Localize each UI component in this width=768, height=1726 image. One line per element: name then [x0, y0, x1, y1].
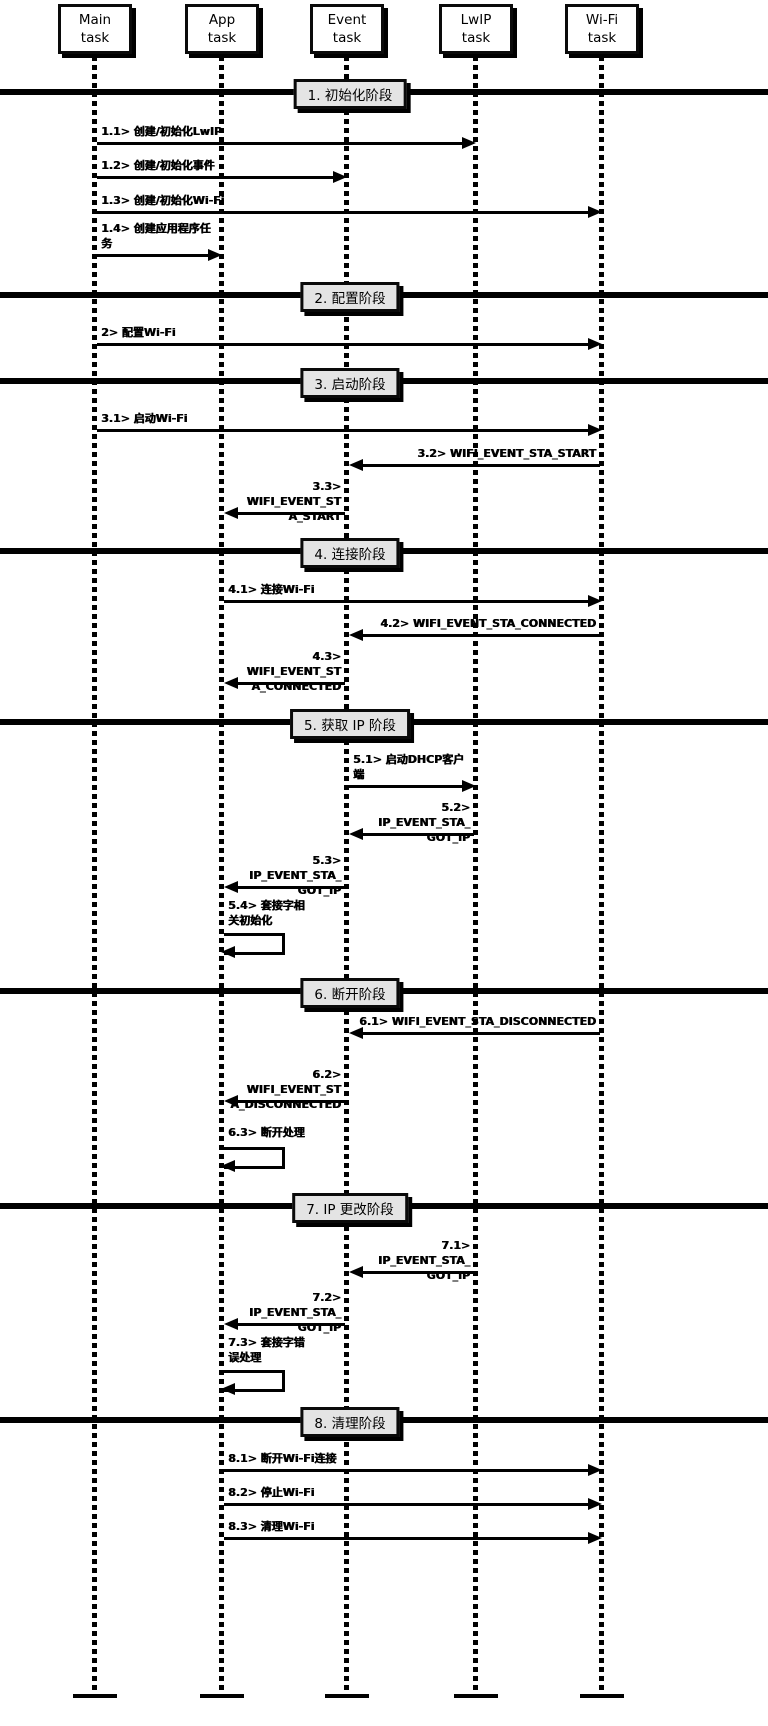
msg-5-1-arrowhead: [462, 780, 476, 792]
msg-4-2-line: [361, 634, 600, 637]
phase-4-divider-label: 4. 连接阶段: [300, 538, 399, 568]
msg-5-1-line: [349, 785, 462, 788]
msg-1-4-label: 1.4> 创建应用程序任 务: [101, 221, 211, 251]
msg-7-3-label: 7.3> 套接字错 误处理: [228, 1335, 305, 1365]
phase-3-divider-label: 3. 启动阶段: [300, 368, 399, 398]
msg-3-2-line: [361, 464, 600, 467]
msg-6-3-arrowhead: [221, 1160, 235, 1172]
bottom-cap-event: [325, 1694, 369, 1698]
bottom-cap-main: [73, 1694, 117, 1698]
msg-5-4-arrowhead: [221, 946, 235, 958]
msg-4-3-label: 4.3> WIFI_EVENT_ST A_CONNECTED: [225, 649, 341, 694]
lifeline-main-task: [92, 56, 97, 1694]
phase-2-divider-label: 2. 配置阶段: [300, 282, 399, 312]
msg-1-4-line: [97, 254, 208, 257]
msg-1-2-label: 1.2> 创建/初始化事件: [101, 158, 215, 173]
task-box-app-label: App: [188, 11, 256, 29]
msg-6-2-label: 6.2> WIFI_EVENT_ST A_DISCONNECTED: [225, 1067, 341, 1112]
msg-3-1-line: [97, 429, 588, 432]
msg-8-1-arrowhead: [588, 1464, 602, 1476]
msg-4-1-arrowhead: [588, 595, 602, 607]
task-box-lwip-label: LwIP: [442, 11, 510, 29]
msg-7-2-label: 7.2> IP_EVENT_STA_ GOT_IP: [225, 1290, 341, 1335]
phase-6-divider-label: 6. 断开阶段: [300, 978, 399, 1008]
lifeline-lwip-task: [473, 56, 478, 1694]
msg-8-2-line: [224, 1503, 588, 1506]
msg-3-1-arrowhead: [588, 424, 602, 436]
msg-1-1-label: 1.1> 创建/初始化LwIP: [101, 124, 222, 139]
task-box-wifi-label: Wi-Fi: [568, 11, 636, 29]
lifeline-wifi-task: [599, 56, 604, 1694]
phase-1-divider-label: 1. 初始化阶段: [294, 79, 407, 109]
msg-2-label: 2> 配置Wi-Fi: [101, 325, 175, 340]
msg-1-3-line: [97, 211, 588, 214]
msg-5-2-label: 5.2> IP_EVENT_STA_ GOT_IP: [352, 800, 470, 845]
msg-2-arrowhead: [588, 338, 602, 350]
msg-3-1-label: 3.1> 启动Wi-Fi: [101, 411, 187, 426]
msg-4-1-label: 4.1> 连接Wi-Fi: [228, 582, 314, 597]
msg-7-3-arrowhead: [221, 1383, 235, 1395]
task-box-wifi: Wi-Fi task: [565, 4, 639, 54]
bottom-cap-app: [200, 1694, 244, 1698]
msg-1-3-arrowhead: [588, 206, 602, 218]
bottom-cap-wifi: [580, 1694, 624, 1698]
task-box-lwip: LwIP task: [439, 4, 513, 54]
msg-8-2-label: 8.2> 停止Wi-Fi: [228, 1485, 314, 1500]
msg-3-2-label: 3.2> WIFI_EVENT_STA_START: [340, 446, 596, 461]
task-box-event: Event task: [310, 4, 384, 54]
phase-8-divider-label: 8. 清理阶段: [300, 1407, 399, 1437]
msg-8-3-arrowhead: [588, 1532, 602, 1544]
msg-5-4-label: 5.4> 套接字相 关初始化: [228, 898, 305, 928]
phase-5-divider-label: 5. 获取 IP 阶段: [290, 709, 410, 739]
lifeline-app-task: [219, 56, 224, 1694]
msg-8-3-label: 8.3> 清理Wi-Fi: [228, 1519, 314, 1534]
msg-3-3-label: 3.3> WIFI_EVENT_ST A_START: [225, 479, 341, 524]
task-box-event-label: Event: [313, 11, 381, 29]
msg-4-2-label: 4.2> WIFI_EVENT_STA_CONNECTED: [340, 616, 596, 631]
msg-2-line: [97, 343, 588, 346]
msg-6-1-line: [361, 1032, 600, 1035]
bottom-cap-lwip: [454, 1694, 498, 1698]
msg-1-2-arrowhead: [333, 171, 347, 183]
msg-4-1-line: [224, 600, 588, 603]
msg-5-1-label: 5.1> 启动DHCP客户 端: [353, 752, 464, 782]
msg-1-3-label: 1.3> 创建/初始化Wi-Fi: [101, 193, 224, 208]
msg-6-1-label: 6.1> WIFI_EVENT_STA_DISCONNECTED: [340, 1014, 596, 1029]
msg-5-3-label: 5.3> IP_EVENT_STA_ GOT_IP: [225, 853, 341, 898]
msg-8-3-line: [224, 1537, 588, 1540]
wifi-sequence-diagram: Main task App task Event task LwIP task …: [0, 0, 768, 1726]
msg-8-1-label: 8.1> 断开Wi-Fi连接: [228, 1451, 336, 1466]
msg-1-1-arrowhead: [462, 137, 476, 149]
msg-7-1-label: 7.1> IP_EVENT_STA_ GOT_IP: [352, 1238, 470, 1283]
task-box-main: Main task: [58, 4, 132, 54]
task-box-main-label: Main: [61, 11, 129, 29]
msg-1-1-line: [97, 142, 462, 145]
msg-1-2-line: [97, 176, 333, 179]
task-box-app: App task: [185, 4, 259, 54]
phase-7-divider-label: 7. IP 更改阶段: [292, 1193, 408, 1223]
msg-6-3-label: 6.3> 断开处理: [228, 1125, 305, 1140]
msg-8-1-line: [224, 1469, 588, 1472]
msg-8-2-arrowhead: [588, 1498, 602, 1510]
